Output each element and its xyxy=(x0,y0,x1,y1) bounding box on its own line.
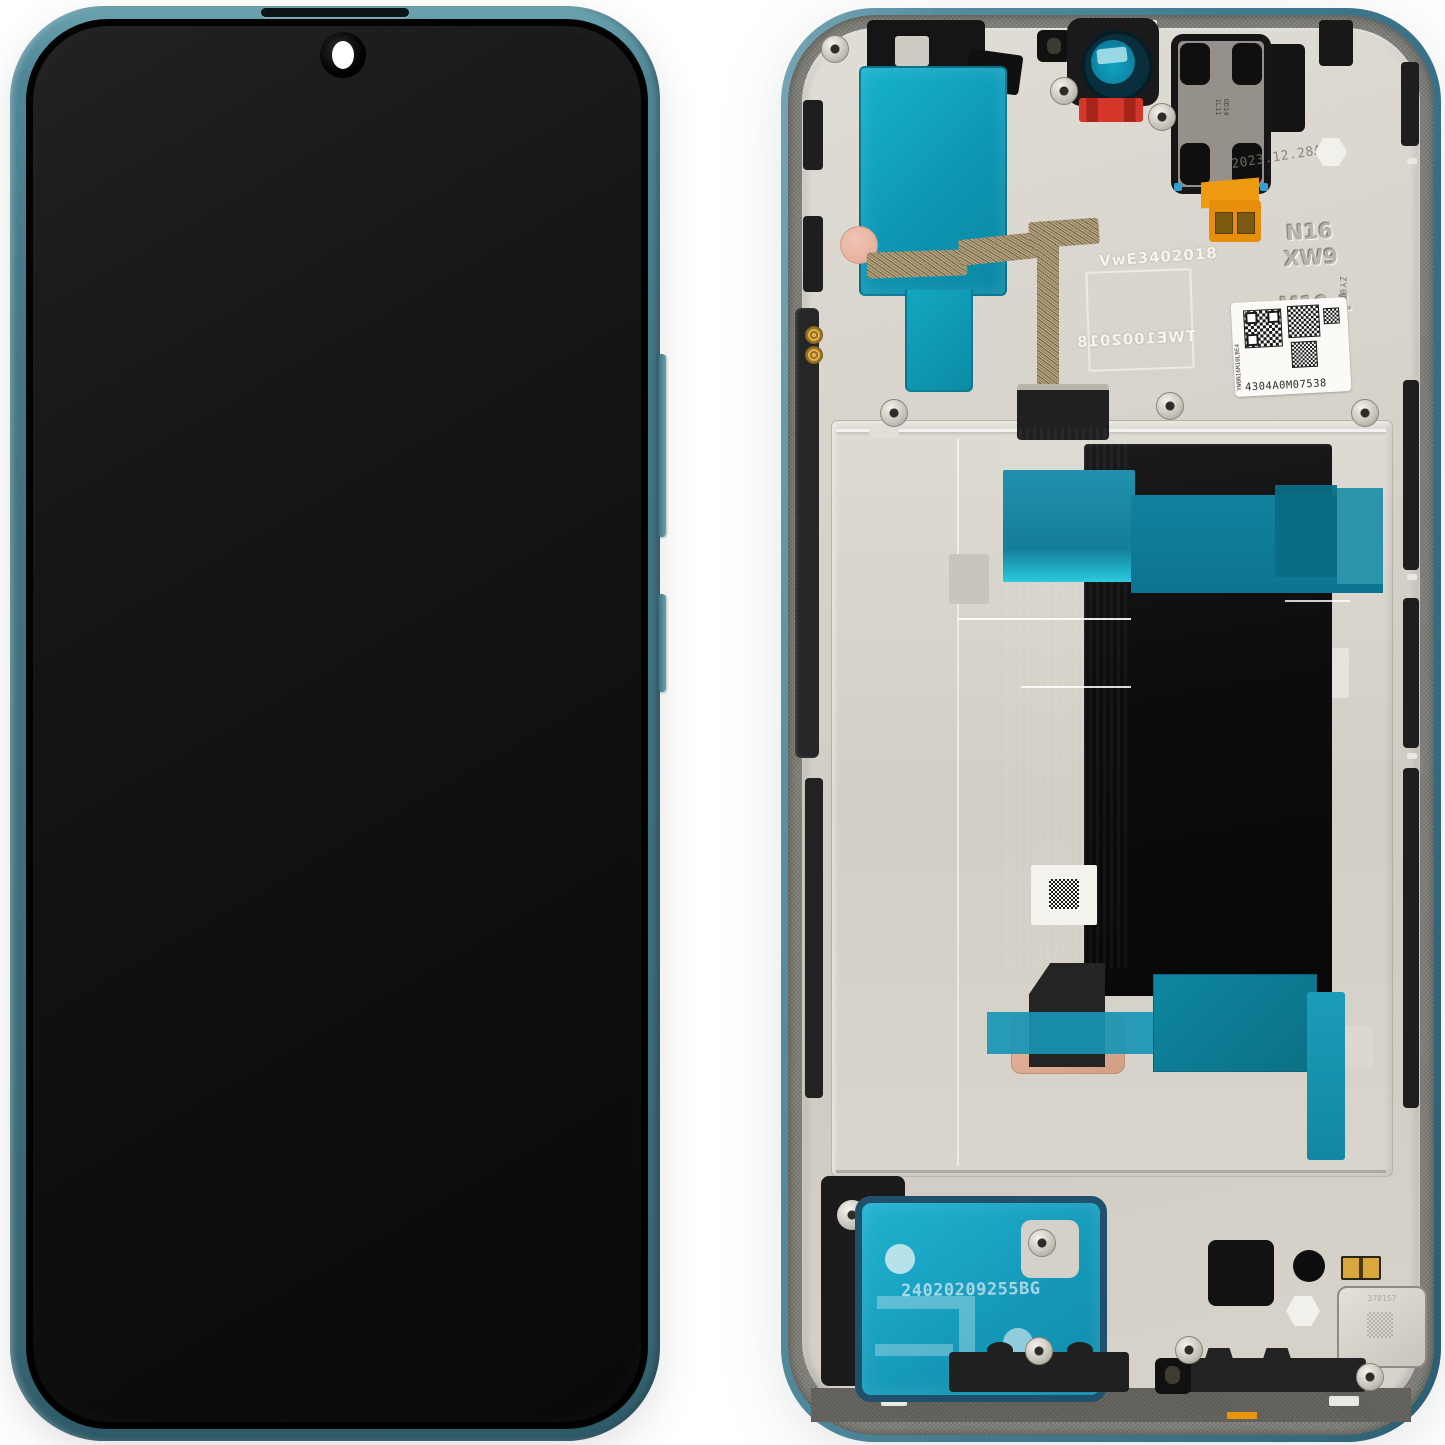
side-gasket xyxy=(1401,62,1419,146)
plate-pad xyxy=(949,554,989,604)
earpiece-marking-a: GD14 xyxy=(1222,99,1230,116)
antenna-break-tab xyxy=(1407,574,1417,580)
side-gasket xyxy=(803,216,823,292)
side-gasket xyxy=(1403,598,1419,748)
qr-code xyxy=(1243,308,1283,348)
orange-flex-sliver xyxy=(1227,1412,1257,1419)
flex-contact-pad xyxy=(1237,212,1255,234)
front-camera-punch-hole xyxy=(332,41,354,69)
screw xyxy=(1148,103,1176,131)
bottom-gasket-strip xyxy=(1176,1358,1366,1392)
black-circle-pad xyxy=(1293,1250,1325,1282)
grommet-hole xyxy=(1047,38,1061,54)
vibration-motor: 3701S7 xyxy=(1337,1286,1427,1368)
white-seam-line xyxy=(1285,600,1350,602)
front-screen xyxy=(26,19,648,1429)
mold-code-2: XW9 xyxy=(1283,245,1338,272)
bracket-cutout xyxy=(895,36,929,66)
blue-adhesive-dot xyxy=(1174,183,1182,191)
datamatrix-code xyxy=(1049,879,1079,909)
spring-contact xyxy=(805,346,823,364)
emi-gasket-segment xyxy=(867,249,968,278)
screw xyxy=(1025,1337,1053,1365)
qr-code xyxy=(1287,304,1321,338)
teal-tape-strip-lower xyxy=(987,1012,1155,1054)
etched-rectangle xyxy=(1085,268,1194,372)
black-foam-pad xyxy=(1208,1240,1274,1306)
side-gasket xyxy=(803,100,823,170)
earpiece-slot xyxy=(261,8,409,17)
screw xyxy=(821,35,849,63)
gasket-tooth xyxy=(1262,1348,1292,1362)
side-gasket xyxy=(1403,380,1419,570)
sticker-serial: 4304A0M07538 xyxy=(1245,377,1327,393)
earpiece-speaker: GD14 1L11 xyxy=(1171,34,1271,194)
antenna-break-tab xyxy=(1407,158,1417,164)
front-phone-assembly xyxy=(10,6,660,1441)
blue-adhesive-dot xyxy=(1260,183,1268,191)
tape-embossed-bar xyxy=(875,1344,953,1356)
white-seam-line xyxy=(959,618,1131,620)
screw xyxy=(1050,77,1078,105)
gasket-bump xyxy=(987,1342,1013,1358)
earpiece-flex-pads xyxy=(1209,200,1261,242)
product-photo-canvas: { "image": { "subject": "Smartphone LCD … xyxy=(0,0,1445,1445)
tape-embossed-bar xyxy=(959,1296,975,1356)
qr-finder xyxy=(1267,311,1280,324)
teal-tape-vertical xyxy=(1307,992,1345,1160)
speaker-tape-code: 24020209255BG xyxy=(901,1279,1041,1301)
qr-label-sticker: YW0N16M10LBE4 4304A0M07538 xyxy=(1231,297,1352,397)
mold-code-1: N16 xyxy=(1285,219,1333,245)
speaker-lobe xyxy=(1232,43,1262,85)
side-button-backing xyxy=(795,308,819,758)
plate-seam-vertical xyxy=(957,438,959,1166)
antenna-break-tab xyxy=(1407,753,1417,759)
earpiece-marking: GD14 1L11 xyxy=(1202,87,1230,127)
plate-ridge-bottom xyxy=(836,1170,1386,1173)
top-bracket xyxy=(1319,20,1353,66)
screw xyxy=(1351,399,1379,427)
power-button xyxy=(657,594,666,692)
speaker-lobe xyxy=(1180,143,1210,185)
front-camera-ring xyxy=(1081,30,1153,102)
teal-tape-patch-lower xyxy=(1153,974,1317,1072)
back-phone-assembly: GD14 1L11 2023.12.28A N16 XW9 M10-1 VwE3… xyxy=(781,8,1441,1442)
screw xyxy=(1156,392,1184,420)
motor-datamatrix xyxy=(1367,1312,1393,1338)
qr-code-small xyxy=(1323,307,1340,324)
speaker-lobe xyxy=(1180,43,1210,85)
spring-contact xyxy=(805,326,823,344)
qr-code-small xyxy=(1291,341,1318,368)
qr-finder xyxy=(1245,312,1258,325)
antenna-break-tab xyxy=(1329,1396,1359,1406)
gasket-bump xyxy=(1067,1342,1093,1358)
teal-tape-dark-patch xyxy=(1275,485,1337,577)
grommet-hole xyxy=(1165,1366,1180,1384)
gold-contact-pads xyxy=(1341,1256,1381,1280)
side-gasket xyxy=(805,778,823,1098)
tape-embossed-circle xyxy=(885,1244,915,1274)
adhesive-tape-top-step xyxy=(905,290,973,392)
qr-finder xyxy=(1246,334,1259,347)
lens-glint xyxy=(1096,46,1127,64)
screw xyxy=(1356,1363,1384,1391)
screw xyxy=(1175,1336,1203,1364)
red-clip xyxy=(1079,98,1143,122)
volume-button xyxy=(657,354,666,537)
screw xyxy=(1028,1229,1056,1257)
flex-datamatrix-sticker xyxy=(1031,865,1097,925)
gasket-tooth xyxy=(1204,1348,1234,1362)
teal-tape-band-left xyxy=(1003,470,1135,582)
side-gasket xyxy=(1403,768,1419,1108)
screw xyxy=(880,399,908,427)
flex-contact-pad xyxy=(1215,212,1233,234)
d-grommet xyxy=(1037,30,1071,62)
motor-marking: 3701S7 xyxy=(1339,1294,1425,1303)
teal-tape-band-end xyxy=(1337,488,1383,584)
white-seam-line xyxy=(1021,686,1131,688)
earpiece-marking-b: 1L11 xyxy=(1214,99,1222,116)
